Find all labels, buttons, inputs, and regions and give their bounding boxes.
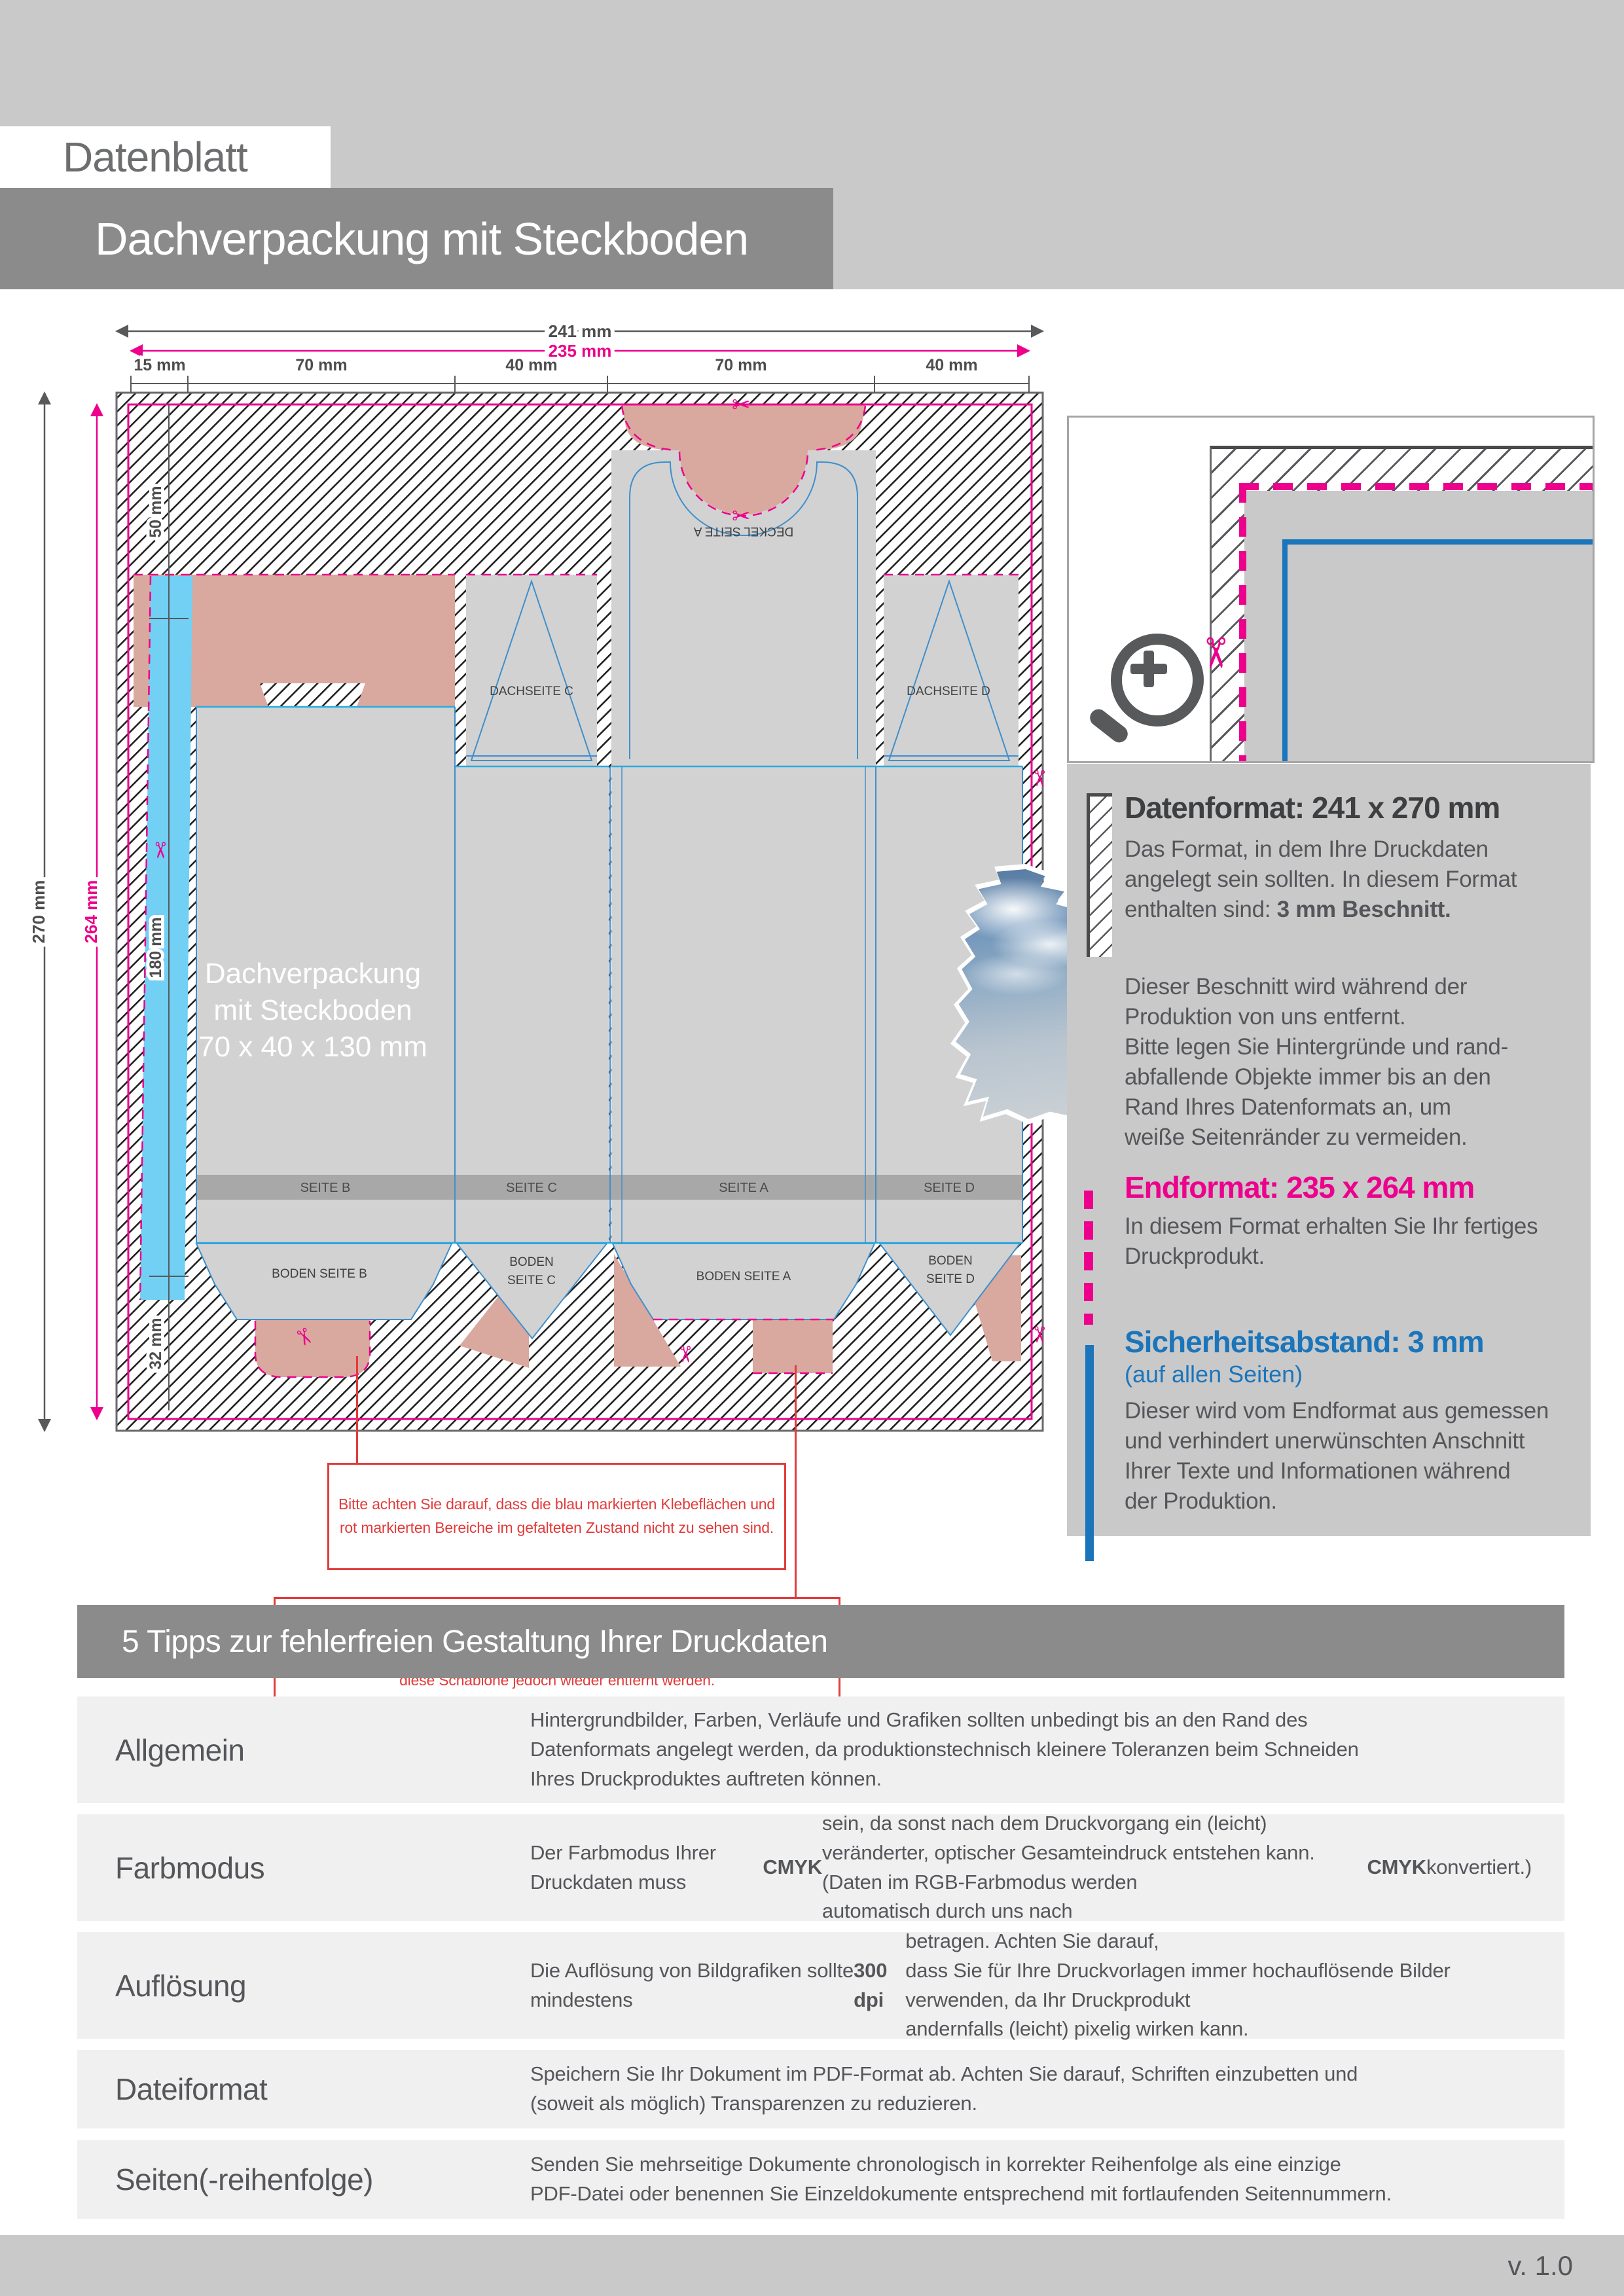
endformat-frame — [128, 404, 1032, 1419]
flap-boden-c — [457, 1244, 607, 1338]
tip-label: Seiten(-reihenfolge) — [115, 2140, 373, 2219]
scissors-icons: ✂ ✂ ✂ ✂ ✂ ✂ ✂ — [147, 393, 1051, 1364]
corner-diagram-artwork — [1244, 491, 1595, 763]
endformat-title: Endformat: 235 x 264 mm — [1125, 1170, 1474, 1205]
doc-type-label: Datenblatt — [63, 133, 247, 181]
dimensions: 241 mm 235 mm 15 mm 70 mm 40 mm 70 mm 40… — [29, 321, 1043, 1431]
tip-label: Auflösung — [115, 1932, 246, 2039]
zoom-illustration-box: ✂ — [1067, 416, 1595, 763]
product-label-line1: Dachverpackung — [205, 958, 421, 990]
tip-text: Hintergrundbilder, Farben, Verläufe und … — [530, 1696, 1532, 1803]
flap-boden-b — [196, 1244, 452, 1319]
dim-seg-left-0: 50 mm — [147, 486, 165, 537]
label-seite-a: SEITE A — [719, 1181, 768, 1195]
bleed-area-hatch — [117, 393, 1043, 1431]
tip-text: Die Auflösung von Bildgrafiken sollte mi… — [530, 1932, 1532, 2039]
glue-strip — [140, 576, 192, 1300]
corner-diagram-cutline-v — [1239, 483, 1246, 763]
product-label-line2: mit Steckboden — [213, 994, 412, 1026]
dim-seg-top-1: 70 mm — [295, 356, 347, 374]
fold-lines-cyan — [196, 707, 1022, 1243]
doc-type-box: Datenblatt — [0, 126, 331, 188]
panel-dachseite-c — [466, 575, 597, 766]
scissors-icon: ✂ — [672, 1345, 697, 1364]
label-seite-b: SEITE B — [300, 1181, 351, 1195]
page-title: Dachverpackung mit Steckboden — [95, 213, 748, 265]
strip-marked-a — [753, 1319, 833, 1373]
dim-seg-top-3: 70 mm — [715, 356, 767, 374]
label-dachseite-d: DACHSEITE D — [907, 685, 990, 698]
notch-cutout — [260, 683, 365, 707]
scissors-icon: ✂ — [1026, 769, 1051, 788]
sicherheitsabstand-body: Dieser wird vom Endformat aus gemessen u… — [1125, 1396, 1549, 1516]
footer-band: v. 1.0 — [0, 2235, 1624, 2296]
format-info-panel: Datenformat: 241 x 270 mm Das Format, in… — [1067, 764, 1591, 1536]
datenformat-body: Das Format, in dem Ihre Druckdaten angel… — [1125, 834, 1517, 925]
tip-label: Farbmodus — [115, 1814, 264, 1921]
label-seite-d: SEITE D — [924, 1181, 975, 1195]
version-label: v. 1.0 — [1507, 2250, 1573, 2282]
scissors-icon: ✂ — [1190, 636, 1239, 671]
tips-title: 5 Tipps zur fehlerfreien Gestaltung Ihre… — [122, 1624, 828, 1660]
page-title-band: Dachverpackung mit Steckboden — [0, 188, 833, 289]
dim-seg-top-2: 40 mm — [505, 356, 557, 374]
label-seite-c: SEITE C — [506, 1181, 557, 1195]
panel-deckel-seite-a — [611, 450, 876, 1244]
label-boden-b: BODEN SEITE B — [272, 1267, 367, 1281]
tip-text: Senden Sie mehrseitige Dokumente chronol… — [530, 2140, 1532, 2219]
boden-flaps — [196, 1244, 1020, 1338]
warning-note-1-text: Bitte achten Sie darauf, dass die blau m… — [338, 1493, 775, 1539]
label-boden-c-2: SEITE C — [507, 1274, 556, 1287]
datasheet-page: { "header": { "doc_type": "Datenblatt", … — [0, 0, 1624, 2296]
label-boden-d-1: BODEN — [928, 1254, 973, 1268]
panel-dachseite-d — [884, 575, 1019, 766]
scissors-icon: ✂ — [732, 393, 751, 418]
note1-connector-line — [356, 1356, 358, 1465]
seite-label-band — [196, 1175, 1022, 1200]
tuck-flap-marked — [622, 404, 865, 514]
flap-boden-a — [613, 1244, 875, 1319]
magnifier-plus-icon — [1144, 651, 1154, 687]
product-label-line3: 70 x 40 x 130 mm — [198, 1031, 427, 1063]
tip-row-allgemein: Allgemein Hintergrundbilder, Farben, Ver… — [77, 1696, 1564, 1803]
dim-total-width: 241 mm — [549, 321, 612, 341]
tab-marked-b — [255, 1319, 370, 1377]
corner-diagram-safety-h — [1282, 539, 1595, 545]
wedge-marked-2 — [614, 1254, 681, 1367]
scissors-icon: ✂ — [1026, 1325, 1051, 1344]
wedge-marked-d — [961, 1255, 1021, 1361]
corner-diagram-safety-v — [1282, 539, 1288, 763]
safety-bar-icon — [1085, 1345, 1094, 1561]
tip-label: Dateiformat — [115, 2050, 267, 2128]
datenformat-body2: Dieser Beschnitt wird während der Produk… — [1125, 972, 1508, 1153]
dim-format-height: 264 mm — [81, 880, 101, 944]
sicherheitsabstand-title: Sicherheitsabstand: 3 mm — [1125, 1324, 1484, 1359]
corner-diagram-cutline-h — [1239, 483, 1595, 490]
panel-seite-b — [196, 707, 455, 1244]
scissors-icon: ✂ — [732, 504, 751, 529]
fold-lines-blue — [196, 462, 1022, 1243]
label-deckel-seite-a: DECKEL SEITE A — [693, 524, 793, 538]
marked-areas — [134, 404, 1021, 1377]
label-boden-a: BODEN SEITE A — [696, 1270, 791, 1283]
dim-format-width: 235 mm — [549, 341, 612, 361]
tip-row-seitenreihenfolge: Seiten(-reihenfolge) Senden Sie mehrseit… — [77, 2140, 1564, 2219]
note2-connector-line — [795, 1365, 797, 1600]
tip-row-aufloesung: Auflösung Die Auflösung von Bildgrafiken… — [77, 1932, 1564, 2039]
tip-text: Speichern Sie Ihr Dokument im PDF-Format… — [530, 2050, 1532, 2128]
label-boden-c-1: BODEN — [509, 1255, 554, 1269]
endformat-body: In diesem Format erhalten Sie Ihr fertig… — [1125, 1211, 1538, 1272]
datenformat-title: Datenformat: 241 x 270 mm — [1125, 790, 1500, 825]
sicherheitsabstand-subtitle: (auf allen Seiten) — [1125, 1361, 1303, 1388]
panel-seite-c — [455, 766, 609, 1244]
tip-label: Allgemein — [115, 1696, 245, 1803]
tips-section-header: 5 Tipps zur fehlerfreien Gestaltung Ihre… — [77, 1605, 1564, 1678]
dim-total-height: 270 mm — [29, 880, 48, 944]
flap-boden-d — [880, 1244, 1020, 1335]
dim-seg-top-0: 15 mm — [134, 356, 185, 374]
top-band-marked — [134, 575, 455, 707]
wedge-marked-1 — [460, 1258, 529, 1368]
scissors-icon: ✂ — [289, 1323, 319, 1351]
scissors-icon: ✂ — [147, 841, 172, 860]
endformat-dash-icon — [1084, 1191, 1093, 1325]
warning-note-1: Bitte achten Sie darauf, dass die blau m… — [327, 1463, 786, 1570]
dim-seg-top-4: 40 mm — [926, 356, 977, 374]
tip-row-farbmodus: Farbmodus Der Farbmodus Ihrer Druckdaten… — [77, 1814, 1564, 1921]
dieline-panels — [196, 450, 1022, 1244]
bleed-hatch-swatch-icon — [1087, 793, 1112, 957]
dim-seg-left-2: 32 mm — [147, 1318, 165, 1369]
cut-lines-dashed — [134, 406, 1019, 1377]
tip-text: Der Farbmodus Ihrer Druckdaten muss CMYK… — [530, 1814, 1532, 1921]
label-boden-d-2: SEITE D — [926, 1272, 975, 1286]
dim-seg-left-1: 180 mm — [147, 917, 165, 978]
tip-row-dateiformat: Dateiformat Speichern Sie Ihr Dokument i… — [77, 2050, 1564, 2128]
label-dachseite-c: DACHSEITE C — [490, 685, 573, 698]
